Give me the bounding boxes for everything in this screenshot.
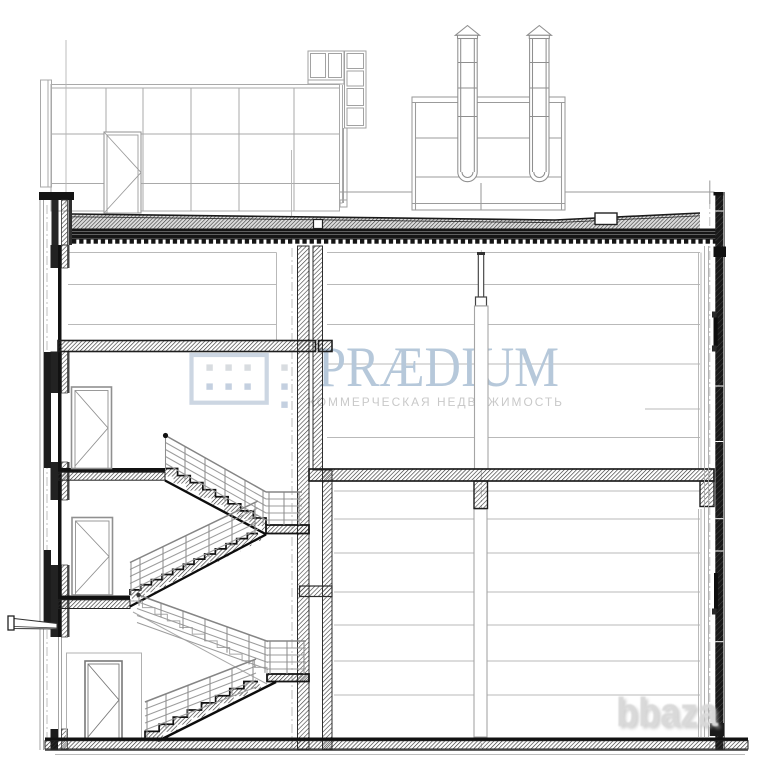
svg-text:bbaza: bbaza bbox=[616, 689, 719, 735]
svg-text:КОММЕРЧЕСКАЯ НЕДВИЖИМОСТЬ: КОММЕРЧЕСКАЯ НЕДВИЖИМОСТЬ bbox=[308, 395, 564, 409]
svg-text:PRÆDIUM: PRÆDIUM bbox=[318, 336, 559, 399]
